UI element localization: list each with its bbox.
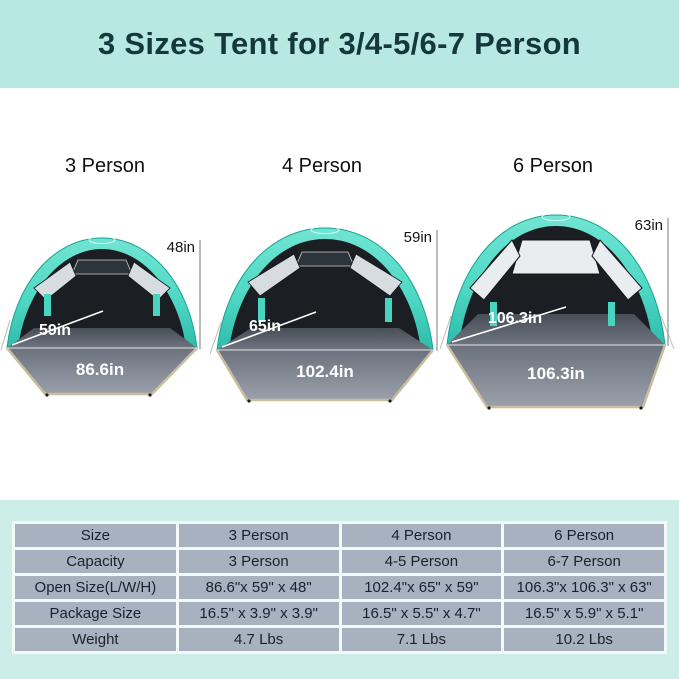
tent-section: 3 Person 4 Person 6 Person 59in 86.6in 4… bbox=[0, 88, 679, 500]
height-dimension-label: 63in bbox=[635, 217, 663, 234]
spec-panel: Size 3 Person 4 Person 6 Person Capacity… bbox=[0, 500, 679, 679]
stake-foot bbox=[487, 406, 490, 409]
size-6person-cell: 6 Person bbox=[504, 524, 664, 547]
tent-label-6person: 6 Person bbox=[513, 155, 593, 177]
tent-label-3person: 3 Person bbox=[65, 155, 145, 177]
weight-6person-cell: 10.2 Lbs bbox=[504, 628, 664, 651]
row-label-size: Size bbox=[15, 524, 176, 547]
size-3person-cell: 3 Person bbox=[179, 524, 339, 547]
interior-floor bbox=[7, 328, 197, 348]
page-title: 3 Sizes Tent for 3/4-5/6-7 Person bbox=[98, 26, 581, 62]
mesh-window-center bbox=[512, 240, 600, 274]
interior-floor bbox=[447, 314, 665, 345]
height-dimension-label: 59in bbox=[404, 229, 432, 246]
open-size-6person-cell: 106.3"x 106.3" x 63" bbox=[504, 576, 664, 599]
capacity-3person-cell: 3 Person bbox=[179, 550, 339, 573]
pole-tab-right bbox=[608, 302, 615, 326]
row-label-package-size: Package Size bbox=[15, 602, 176, 625]
table-row-size: Size 3 Person 4 Person 6 Person bbox=[15, 524, 664, 547]
table-row-capacity: Capacity 3 Person 4-5 Person 6-7 Person bbox=[15, 550, 664, 573]
weight-4person-cell: 7.1 Lbs bbox=[342, 628, 502, 651]
mesh-window-center bbox=[72, 260, 132, 274]
tents-illustration: 3 Person 4 Person 6 Person 59in 86.6in 4… bbox=[0, 88, 679, 500]
row-label-open-size: Open Size(L/W/H) bbox=[15, 576, 176, 599]
table-row-package-size: Package Size 16.5" x 3.9" x 3.9" 16.5" x… bbox=[15, 602, 664, 625]
open-size-3person-cell: 86.6"x 59" x 48" bbox=[179, 576, 339, 599]
tent-label-4person: 4 Person bbox=[282, 155, 362, 177]
pole-tab-right bbox=[385, 298, 392, 322]
depth-dimension-label: 59in bbox=[39, 322, 71, 339]
package-size-4person-cell: 16.5" x 5.5" x 4.7" bbox=[342, 602, 502, 625]
width-dimension-label: 86.6in bbox=[76, 360, 124, 379]
row-label-capacity: Capacity bbox=[15, 550, 176, 573]
table-row-open-size: Open Size(L/W/H) 86.6"x 59" x 48" 102.4"… bbox=[15, 576, 664, 599]
spec-table: Size 3 Person 4 Person 6 Person Capacity… bbox=[12, 521, 667, 654]
capacity-6person-cell: 6-7 Person bbox=[504, 550, 664, 573]
pole-tab-left bbox=[44, 294, 51, 316]
stake-foot bbox=[639, 406, 642, 409]
package-size-6person-cell: 16.5" x 5.9" x 5.1" bbox=[504, 602, 664, 625]
stake-foot bbox=[388, 399, 391, 402]
width-dimension-label: 102.4in bbox=[296, 362, 354, 381]
width-dimension-label: 106.3in bbox=[527, 364, 585, 383]
tent-6person-illustration: 106.3in 106.3in 63in bbox=[440, 214, 674, 410]
depth-dimension-label: 65in bbox=[249, 318, 281, 335]
header-banner: 3 Sizes Tent for 3/4-5/6-7 Person bbox=[0, 0, 679, 88]
tent-3person-illustration: 59in 86.6in 48in bbox=[1, 237, 200, 397]
stake-foot bbox=[247, 399, 250, 402]
mesh-window-center bbox=[296, 252, 354, 266]
row-label-weight: Weight bbox=[15, 628, 176, 651]
capacity-4person-cell: 4-5 Person bbox=[342, 550, 502, 573]
table-row-weight: Weight 4.7 Lbs 7.1 Lbs 10.2 Lbs bbox=[15, 628, 664, 651]
depth-dimension-label: 106.3in bbox=[488, 310, 542, 327]
pole-tab-right bbox=[153, 294, 160, 316]
package-size-3person-cell: 16.5" x 3.9" x 3.9" bbox=[179, 602, 339, 625]
open-size-4person-cell: 102.4"x 65" x 59" bbox=[342, 576, 502, 599]
stake-foot bbox=[45, 393, 48, 396]
tent-4person-illustration: 65in 102.4in 59in bbox=[210, 227, 437, 403]
size-4person-cell: 4 Person bbox=[342, 524, 502, 547]
weight-3person-cell: 4.7 Lbs bbox=[179, 628, 339, 651]
stake-foot bbox=[148, 393, 151, 396]
height-dimension-label: 48in bbox=[167, 239, 195, 256]
